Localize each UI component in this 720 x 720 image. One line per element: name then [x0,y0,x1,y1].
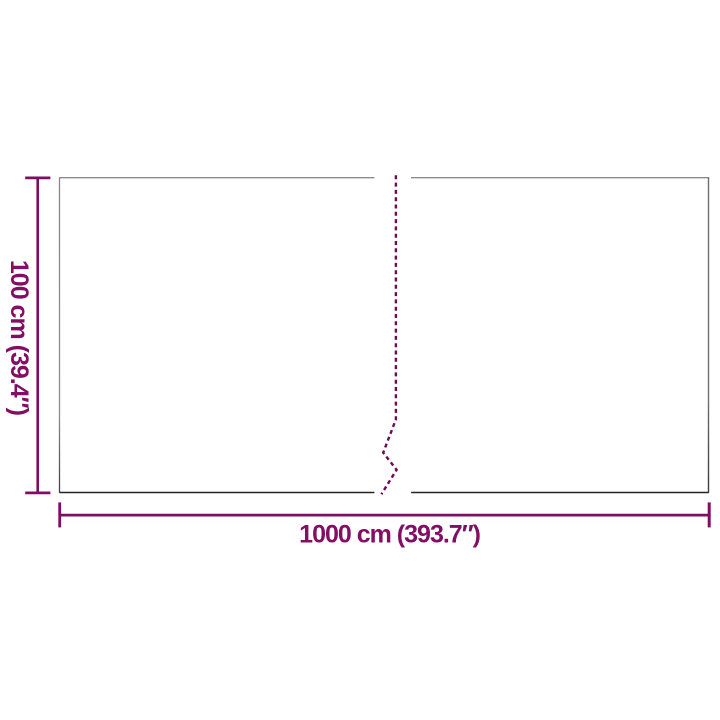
svg-text:1000 cm (393.7″): 1000 cm (393.7″) [299,521,481,549]
svg-text:100 cm (39.4″): 100 cm (39.4″) [5,260,33,416]
